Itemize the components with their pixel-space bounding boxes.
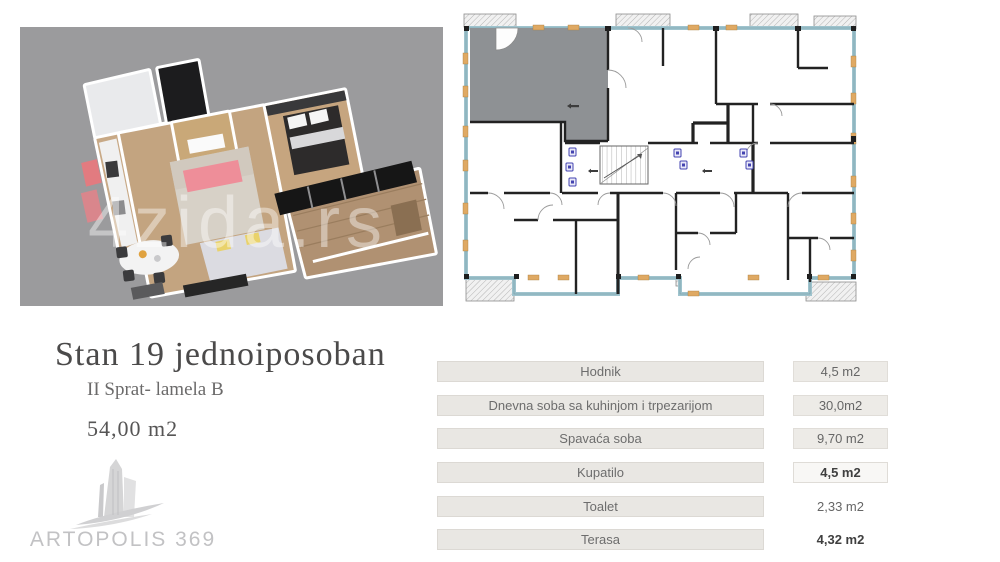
building-logo-icon (56, 455, 186, 530)
floor-plan-3d-panel: 4zida.rs (20, 27, 443, 306)
room-label: Dnevna soba sa kuhinjom i trpezarijom (437, 395, 764, 416)
room-label: Spavaća soba (437, 428, 764, 449)
staircase (600, 146, 648, 184)
brand-block: ARTOPOLIS 369 (8, 450, 238, 560)
room-label: Toalet (437, 496, 764, 517)
room-area-value: 2,33 m2 (793, 496, 888, 517)
room-area-value: 4,32 m2 (793, 529, 888, 550)
room-label: Kupatilo (437, 462, 764, 483)
total-area: 54,00 m2 (87, 416, 178, 442)
room-area-value: 4,5 m2 (793, 462, 888, 483)
room-area-value: 4,5 m2 (793, 361, 888, 382)
room-label: Hodnik (437, 361, 764, 382)
room-area-value: 9,70 m2 (793, 428, 888, 449)
room-area-value: 30,0m2 (793, 395, 888, 416)
floor-plan-2d-image (458, 8, 864, 310)
brand-name: ARTOPOLIS 369 (8, 528, 238, 552)
room-label: Terasa (437, 529, 764, 550)
floor-plan-3d-image (20, 27, 443, 306)
floor-subtitle: II Sprat- lamela B (87, 379, 224, 401)
page-title: Stan 19 jednoiposoban (55, 336, 386, 374)
